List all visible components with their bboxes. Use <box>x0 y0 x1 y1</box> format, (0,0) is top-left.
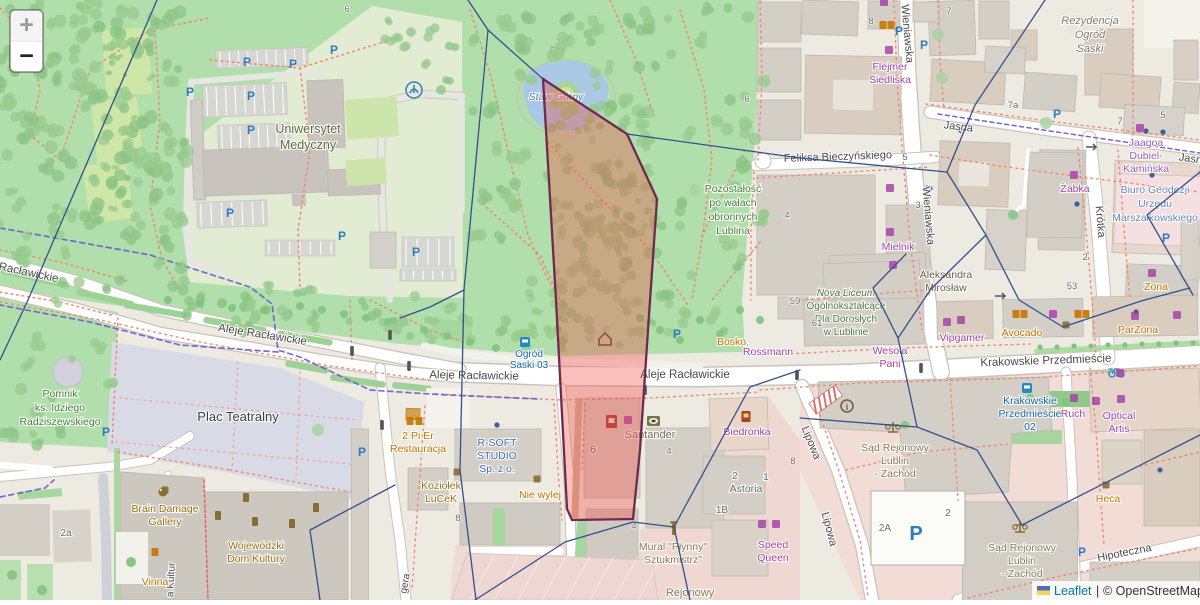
svg-text:obronnych: obronnych <box>708 211 757 223</box>
svg-text:LuCeK: LuCeK <box>425 493 457 505</box>
svg-text:Dom Kultury: Dom Kultury <box>227 553 286 565</box>
svg-text:Mural "Płynny": Mural "Płynny" <box>639 541 707 553</box>
svg-text:P: P <box>330 43 338 57</box>
svg-text:2 Pi Er: 2 Pi Er <box>402 430 434 442</box>
svg-text:P: P <box>920 38 928 52</box>
svg-text:P: P <box>412 245 420 259</box>
svg-text:|: | <box>1096 584 1099 598</box>
svg-text:P: P <box>909 523 922 545</box>
svg-text:6: 6 <box>744 94 749 105</box>
svg-text:Gallery: Gallery <box>148 516 182 528</box>
svg-text:8: 8 <box>868 16 873 27</box>
svg-text:Sąd Rejonowy: Sąd Rejonowy <box>861 442 929 454</box>
svg-text:i: i <box>846 402 849 412</box>
svg-text:- Zachód: - Zachód <box>874 468 916 480</box>
svg-text:Ogród: Ogród <box>515 349 543 360</box>
svg-text:Queen: Queen <box>757 552 789 564</box>
svg-text:Vinna: Vinna <box>142 576 169 588</box>
svg-text:59: 59 <box>790 296 801 307</box>
svg-text:Dla Dorosłych: Dla Dorosłych <box>815 314 877 325</box>
svg-text:2: 2 <box>732 471 738 482</box>
svg-text:Uniwersytet: Uniwersytet <box>275 122 341 136</box>
svg-text:Dubiel-: Dubiel- <box>1129 150 1163 162</box>
svg-text:2a: 2a <box>60 528 72 539</box>
svg-text:P: P <box>186 85 194 99</box>
svg-text:P: P <box>673 327 681 341</box>
svg-text:8: 8 <box>455 513 460 524</box>
svg-text:5: 5 <box>1160 110 1165 121</box>
svg-text:P: P <box>338 229 346 243</box>
svg-text:Pozostałość: Pozostałość <box>705 183 762 195</box>
svg-text:R-SOFT: R-SOFT <box>477 437 517 449</box>
svg-text:Lublina: Lublina <box>716 225 750 237</box>
svg-text:P: P <box>289 57 297 71</box>
svg-text:Radziszewskiego: Radziszewskiego <box>19 416 100 428</box>
svg-text:Biedronka: Biedronka <box>723 426 770 438</box>
svg-text:Zona: Zona <box>1144 281 1168 293</box>
svg-text:−: − <box>19 42 34 70</box>
svg-text:Saski 03: Saski 03 <box>510 360 549 371</box>
svg-text:2A: 2A <box>879 523 892 534</box>
svg-text:Lublin: Lublin <box>1008 555 1036 567</box>
svg-text:P: P <box>1078 545 1086 559</box>
svg-text:Pomnik: Pomnik <box>42 388 78 400</box>
svg-text:Mielnik: Mielnik <box>882 241 915 253</box>
svg-text:1B: 1B <box>716 505 729 516</box>
svg-text:Optical: Optical <box>1103 410 1136 422</box>
svg-text:+: + <box>19 11 34 39</box>
svg-text:Kamińska: Kamińska <box>1123 163 1169 175</box>
svg-text:3: 3 <box>915 200 920 211</box>
svg-text:Avocado: Avocado <box>1002 327 1043 339</box>
svg-text:Restauracja: Restauracja <box>390 443 446 455</box>
svg-text:1: 1 <box>763 472 769 483</box>
svg-text:P: P <box>226 206 234 220</box>
svg-text:P: P <box>243 55 251 69</box>
svg-text:61: 61 <box>812 318 823 329</box>
svg-text:7a: 7a <box>1008 100 1019 111</box>
svg-text:Rejonowy: Rejonowy <box>666 587 715 599</box>
svg-text:Vipgamer: Vipgamer <box>940 332 985 344</box>
svg-text:Flejmer: Flejmer <box>872 61 908 73</box>
svg-text:7: 7 <box>946 6 951 17</box>
svg-text:Brain Damage: Brain Damage <box>131 503 198 515</box>
svg-text:Leaflet: Leaflet <box>1054 584 1092 598</box>
svg-text:2: 2 <box>945 508 951 519</box>
svg-text:P: P <box>1053 107 1061 121</box>
svg-text:4: 4 <box>784 210 789 221</box>
svg-text:Saski: Saski <box>1077 43 1104 55</box>
svg-text:Jaagoa: Jaagoa <box>1129 137 1164 149</box>
svg-text:Biuro Geodezji: Biuro Geodezji <box>1121 184 1190 196</box>
svg-text:Koziołek: Koziołek <box>421 480 461 492</box>
svg-text:02: 02 <box>1024 421 1036 433</box>
svg-text:Wojewódzki: Wojewódzki <box>228 540 284 552</box>
svg-text:Aleje Racławickie: Aleje Racławickie <box>429 369 519 383</box>
svg-text:Przedmieście: Przedmieście <box>998 408 1061 420</box>
svg-text:6: 6 <box>344 4 349 15</box>
svg-text:P: P <box>247 89 255 103</box>
svg-text:Nie wylej: Nie wylej <box>519 489 561 501</box>
svg-text:Artis: Artis <box>1109 423 1130 435</box>
svg-text:Rossmann: Rossmann <box>743 346 793 358</box>
svg-text:P: P <box>102 425 110 439</box>
svg-text:- Zachód: - Zachód <box>1001 568 1043 580</box>
svg-text:Sp. z o.: Sp. z o. <box>479 463 515 475</box>
svg-text:ks. Idziego: ks. Idziego <box>35 402 85 414</box>
svg-text:Marszałkowskiego: Marszałkowskiego <box>1112 212 1198 224</box>
svg-text:Aleje Racławickie: Aleje Racławickie <box>640 369 729 381</box>
svg-text:2: 2 <box>1082 252 1087 263</box>
svg-text:Speed: Speed <box>758 539 789 551</box>
svg-text:53: 53 <box>1067 281 1078 292</box>
svg-text:4: 4 <box>666 446 671 457</box>
svg-text:po wałach: po wałach <box>709 197 756 209</box>
svg-text:Rezydencja: Rezydencja <box>1061 15 1118 27</box>
svg-text:7: 7 <box>1117 116 1122 127</box>
svg-text:Astoria: Astoria <box>730 483 763 495</box>
svg-text:Siedliska: Siedliska <box>869 74 911 86</box>
svg-text:Medyczny: Medyczny <box>280 138 337 152</box>
svg-text:Ogólnokształcące: Ogólnokształcące <box>807 301 886 312</box>
svg-text:Ogród: Ogród <box>1075 29 1106 41</box>
svg-text:5: 5 <box>902 152 907 163</box>
svg-text:Sztukmistrz": Sztukmistrz" <box>644 554 702 566</box>
svg-text:Pani: Pani <box>879 358 900 370</box>
svg-text:Lublin: Lublin <box>881 455 909 467</box>
svg-text:© OpenStreetMap: © OpenStreetMap <box>1103 584 1200 598</box>
svg-text:Krakowskie: Krakowskie <box>1003 395 1057 407</box>
svg-text:Heca: Heca <box>1096 493 1121 505</box>
svg-text:Nova Liceum: Nova Liceum <box>817 288 875 299</box>
svg-text:STUDIO: STUDIO <box>477 450 517 462</box>
svg-text:Sąd Rejonowy: Sąd Rejonowy <box>988 542 1056 554</box>
svg-text:Plac Teatralny: Plac Teatralny <box>197 409 279 424</box>
svg-text:Ruch: Ruch <box>1061 408 1086 420</box>
svg-text:ParZona: ParZona <box>1118 324 1158 336</box>
svg-text:8: 8 <box>790 456 795 467</box>
svg-text:w Lublinie: w Lublinie <box>823 327 869 338</box>
svg-text:P: P <box>358 445 366 459</box>
svg-text:P: P <box>247 123 255 137</box>
svg-text:Żabka: Żabka <box>1060 182 1089 195</box>
